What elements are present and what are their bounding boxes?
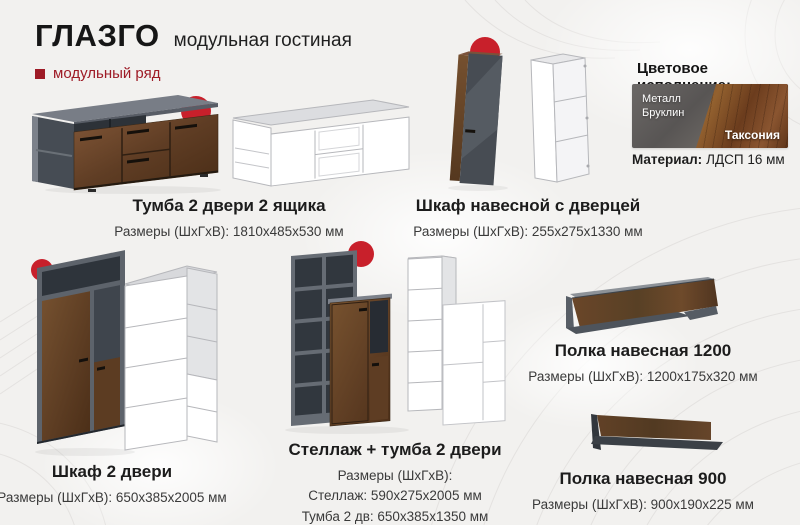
product-size: Стеллаж: 590x275x2005 мм — [255, 486, 535, 506]
stellazh-tumba-illustration — [285, 241, 525, 436]
series-bullet-icon — [35, 69, 45, 79]
brand-title: ГЛАЗГО — [35, 18, 160, 54]
polka-1200-photo — [566, 277, 718, 334]
polka-1200-illustration — [558, 272, 770, 344]
product-size: Размеры (ШхГхВ): 650x385x2005 мм — [0, 488, 252, 508]
shkaf-2-dveri-photo — [31, 250, 135, 456]
shkaf-2-dveri-wireframe — [125, 266, 217, 450]
header: ГЛАЗГО модульная гостиная — [35, 18, 352, 54]
brand-subtitle: модульная гостиная — [174, 30, 352, 52]
finish-swatch: Металл Бруклин Таксония — [632, 84, 788, 148]
polka-900-illustration — [583, 408, 765, 463]
stellazh-tumba-caption: Стеллаж + тумба 2 двери Размеры (ШхГхВ):… — [255, 440, 535, 525]
shkaf-navesnoy-caption: Шкаф навесной с дверцей Размеры (ШхГхВ):… — [388, 196, 668, 241]
product-size: Размеры (ШхГхВ): — [255, 466, 535, 486]
tumba-wireframe — [233, 100, 409, 186]
polka-900-caption: Полка навесная 900 Размеры (ШхГхВ): 900x… — [503, 469, 783, 514]
polka-1200-caption: Полка навесная 1200 Размеры (ШхГхВ): 120… — [503, 341, 783, 386]
tumba-caption: Тумба 2 двери 2 ящика Размеры (ШхГхВ): 1… — [89, 196, 369, 241]
series-label: модульный ряд — [53, 65, 160, 82]
catalog-page: { "header": { "brand": "ГЛАЗГО", "subtit… — [0, 0, 800, 525]
product-size: Размеры (ШхГхВ): 255x275x1330 мм — [388, 222, 668, 242]
product-size: Размеры (ШхГхВ): 1200x175x320 мм — [503, 367, 783, 387]
product-size: Тумба 2 дв: 650x385x1350 мм — [255, 507, 535, 525]
material-line: Материал:ЛДСП 16 мм — [632, 152, 785, 167]
swatch-label-metal-bruklin: Металл Бруклин — [642, 92, 722, 121]
product-title: Полка навесная 900 — [503, 469, 783, 489]
product-title: Шкаф 2 двери — [0, 462, 252, 482]
shkaf-navesnoy-photo — [448, 37, 508, 191]
product-size: Размеры (ШхГхВ): 900x190x225 мм — [503, 495, 783, 515]
product-title: Тумба 2 двери 2 ящика — [89, 196, 369, 216]
polka-900-photo — [591, 414, 723, 450]
stellazh-photo — [285, 241, 409, 434]
product-title: Шкаф навесной с дверцей — [388, 196, 668, 216]
swatch-label-taksoniya: Таксония — [725, 128, 780, 142]
material-label: Материал: — [632, 152, 702, 167]
series-row: модульный ряд — [35, 65, 160, 82]
stellazh-wireframe — [408, 256, 505, 425]
material-value: ЛДСП 16 мм — [706, 152, 785, 167]
product-title: Полка навесная 1200 — [503, 341, 783, 361]
shkaf-2-dveri-illustration — [25, 246, 240, 458]
tumba-photo — [32, 95, 221, 194]
shkaf-navesnoy-wireframe — [531, 54, 590, 182]
product-title: Стеллаж + тумба 2 двери — [255, 440, 535, 460]
shkaf-navesnoy-illustration — [428, 30, 623, 195]
shkaf-2-dveri-caption: Шкаф 2 двери Размеры (ШхГхВ): 650x385x20… — [0, 462, 252, 507]
product-size: Размеры (ШхГхВ): 1810x485x530 мм — [89, 222, 369, 242]
tumba-illustration — [28, 88, 413, 196]
